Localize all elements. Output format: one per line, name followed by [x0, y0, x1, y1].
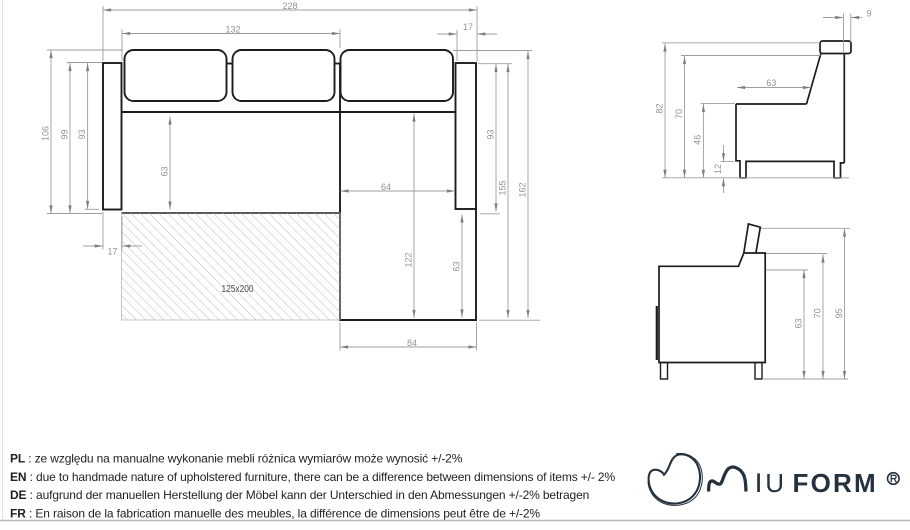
svg-text:63: 63 [766, 78, 776, 88]
svg-text:155: 155 [497, 180, 507, 195]
svg-text:12: 12 [713, 164, 723, 174]
svg-text:63: 63 [793, 318, 803, 328]
svg-text:125x200: 125x200 [222, 284, 254, 295]
svg-text:82: 82 [654, 103, 664, 113]
svg-text:U: U [765, 468, 784, 498]
svg-text:93: 93 [77, 129, 87, 139]
svg-text:95: 95 [834, 308, 844, 318]
svg-text:64: 64 [381, 182, 391, 192]
svg-text:9: 9 [866, 9, 871, 19]
svg-text:70: 70 [674, 109, 684, 119]
svg-text:106: 106 [40, 126, 50, 141]
svg-text:63: 63 [451, 261, 461, 271]
svg-text:17: 17 [463, 22, 473, 32]
svg-text:17: 17 [107, 247, 117, 257]
svg-text:132: 132 [225, 25, 240, 35]
svg-text:EN : due to handmade nature of: EN : due to handmade nature of upholster… [10, 470, 615, 484]
svg-text:99: 99 [59, 129, 69, 139]
svg-text:63: 63 [159, 166, 169, 176]
svg-text:PL : ze względu na manualne wy: PL : ze względu na manualne wykonanie me… [10, 452, 463, 466]
svg-text:228: 228 [282, 1, 297, 11]
svg-text:122: 122 [403, 252, 413, 267]
svg-text:FR : En raison de la fabricati: FR : En raison de la fabrication manuell… [10, 506, 540, 520]
svg-text:84: 84 [407, 338, 417, 348]
svg-text:DE : aufgrund der manuellen He: DE : aufgrund der manuellen Herstellung … [10, 488, 589, 502]
svg-text:FORM: FORM [793, 468, 878, 498]
svg-text:70: 70 [812, 308, 822, 318]
svg-text:93: 93 [485, 129, 495, 139]
svg-text:46: 46 [693, 135, 703, 145]
svg-text:162: 162 [517, 182, 527, 197]
